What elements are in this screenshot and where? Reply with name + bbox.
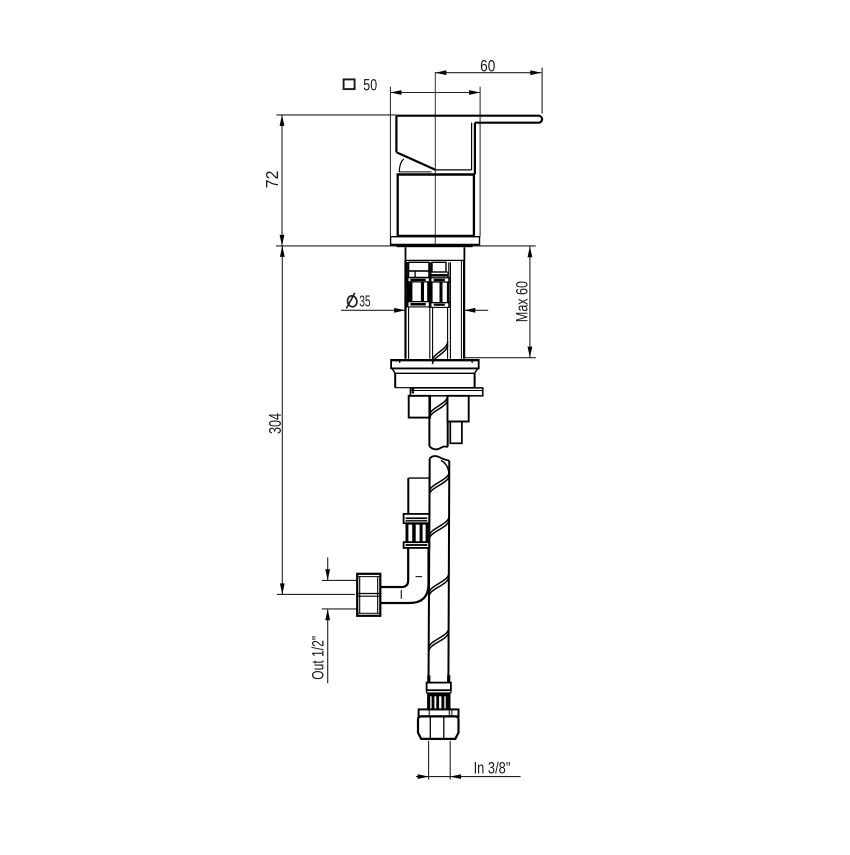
svg-text:304: 304 <box>265 413 285 434</box>
svg-text:Out 1/2": Out 1/2" <box>309 636 328 680</box>
svg-text:35: 35 <box>359 293 370 310</box>
svg-text:Max 60: Max 60 <box>512 281 531 322</box>
svg-text:50: 50 <box>363 75 377 94</box>
svg-text:72: 72 <box>262 171 282 189</box>
svg-text:60: 60 <box>480 56 495 75</box>
svg-text:In 3/8": In 3/8" <box>474 759 511 778</box>
